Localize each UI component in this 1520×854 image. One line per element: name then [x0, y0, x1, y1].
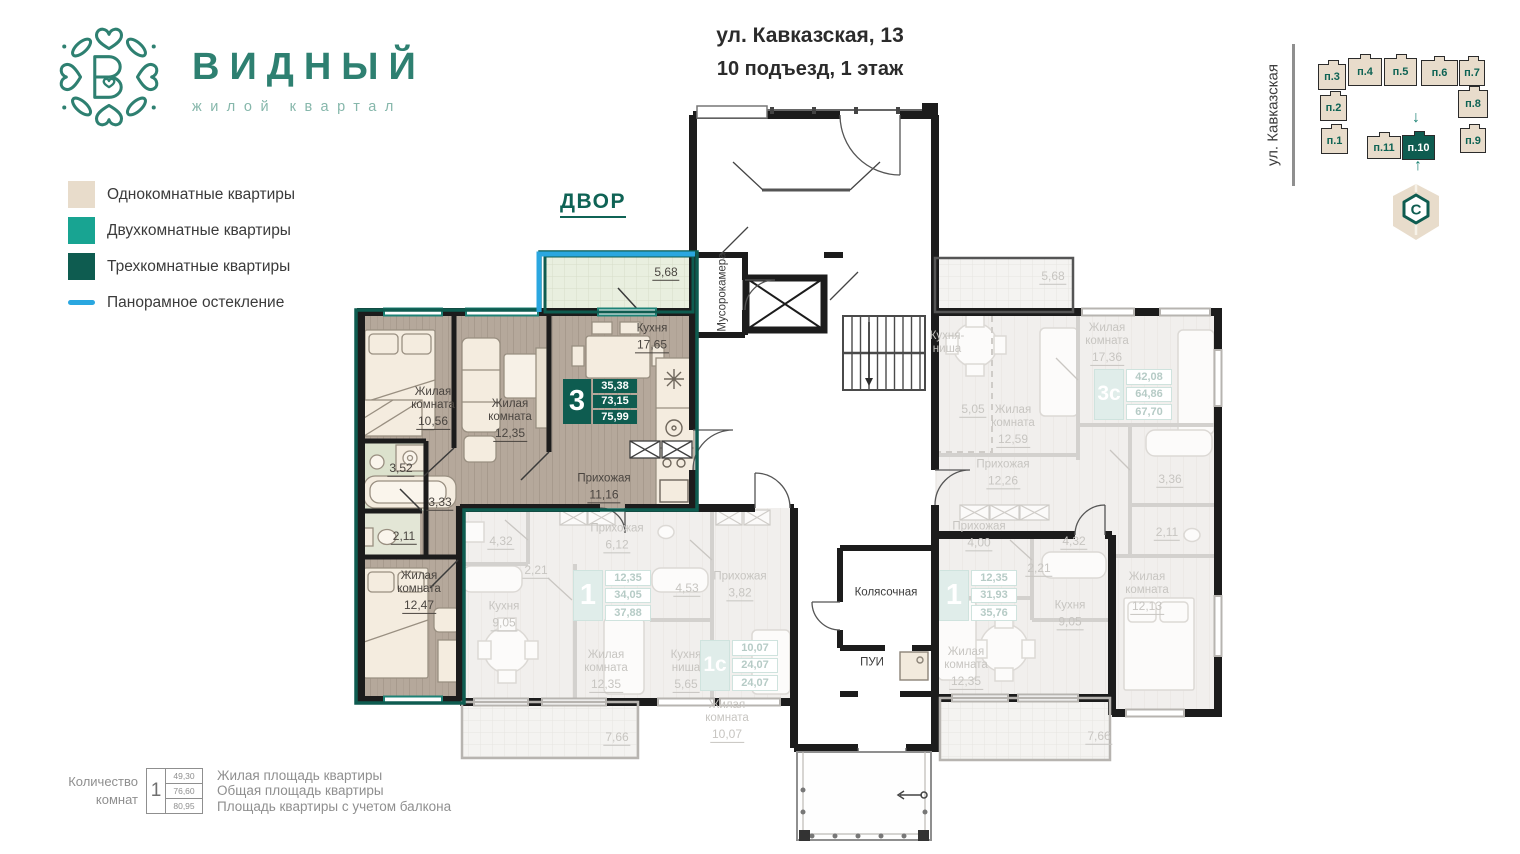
total-area-label: Общая площадь квартиры	[217, 783, 451, 798]
area-legend-lines: Жилая площадь квартиры Общая площадь ква…	[217, 768, 451, 814]
minimap-entrance-п.4[interactable]: п.4	[1348, 58, 1382, 86]
minimap-entrance-п.8[interactable]: п.8	[1458, 90, 1488, 118]
down-arrow-icon: ↓	[1412, 110, 1420, 126]
minimap-entrance-п.7[interactable]: п.7	[1459, 60, 1485, 86]
apartment-rooms-count: 1с	[700, 640, 730, 691]
sample-apartment-badge: 1 49,30 76,60 80,95	[146, 768, 203, 814]
up-arrow-icon: ↑	[1414, 158, 1422, 174]
apartment-rooms-count: 1	[939, 570, 969, 621]
minimap-entrance-п.3[interactable]: п.3	[1318, 64, 1346, 90]
living-area-label: Жилая площадь квартиры	[217, 768, 451, 783]
apartment-rooms-count: 3	[563, 379, 591, 424]
apartment-badge[interactable]: 112,3534,0537,88	[573, 570, 651, 621]
minimap-entrance-п.9[interactable]: п.9	[1460, 128, 1486, 153]
apartment-badge[interactable]: 3с42,0864,8667,70	[1094, 369, 1172, 420]
minimap-entrance-п.2[interactable]: п.2	[1320, 95, 1347, 121]
svg-text:C: C	[1411, 202, 1422, 219]
rooms-count-label: Количество комнат	[60, 773, 138, 808]
minimap-entrance-п.5[interactable]: п.5	[1384, 58, 1417, 86]
total-with-balcony-label: Площадь квартиры с учетом балкона	[217, 799, 451, 814]
street-line	[1292, 44, 1295, 186]
apartment-badge[interactable]: 335,3873,1575,99	[563, 379, 637, 424]
minimap-entrance-п.6[interactable]: п.6	[1421, 60, 1458, 86]
minimap-entrance-п.11[interactable]: п.11	[1367, 136, 1401, 159]
minimap-entrance-п.1[interactable]: п.1	[1321, 128, 1348, 154]
area-legend: Количество комнат 1 49,30 76,60 80,95 Жи…	[60, 768, 451, 814]
apartment-badge[interactable]: 112,3531,9335,76	[939, 570, 1017, 621]
compass-icon: C	[1390, 183, 1442, 241]
floor-plan-page: ВИДНЫЙ жилой квартал ул. Кавказская, 13 …	[0, 0, 1520, 854]
apartment-rooms-count: 3с	[1094, 369, 1124, 420]
street-label: ул. Кавказская	[1262, 44, 1284, 186]
apartment-rooms-count: 1	[573, 570, 603, 621]
apartment-badge[interactable]: 1с10,0724,0724,07	[700, 640, 778, 691]
